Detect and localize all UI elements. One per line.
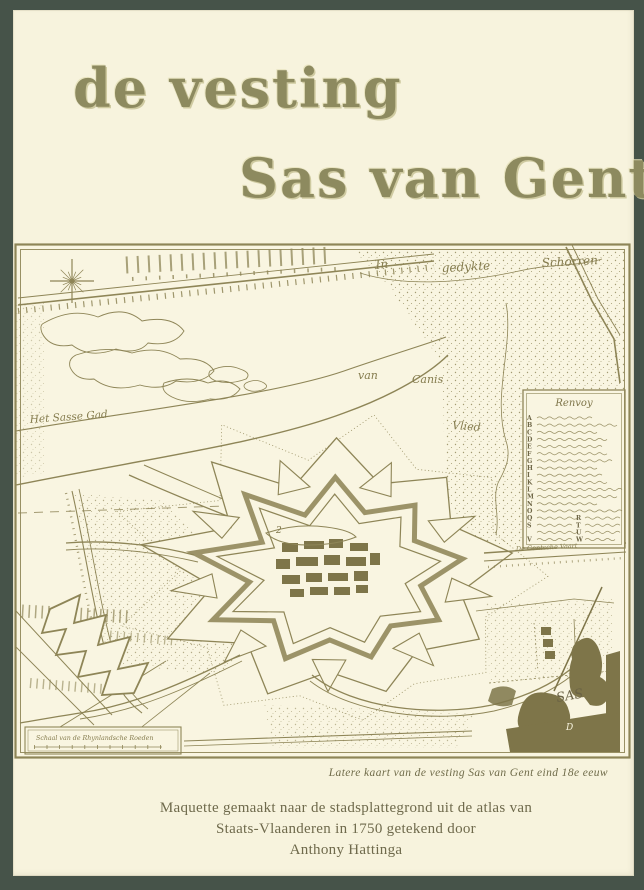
map-engraving: 2 Renvoy bbox=[14, 243, 631, 759]
label-vlied: Vlied bbox=[452, 419, 481, 434]
svg-text:T: T bbox=[576, 522, 581, 529]
credit-block: Maquette gemaakt naar de stadsplattegron… bbox=[13, 798, 634, 861]
svg-text:L: L bbox=[527, 487, 532, 494]
cartouche-d-label: D bbox=[565, 723, 573, 733]
label-gedykte: gedykte bbox=[441, 258, 490, 275]
legend-title: Renvoy bbox=[554, 398, 593, 409]
svg-text:O: O bbox=[527, 508, 533, 515]
svg-text:R: R bbox=[576, 515, 582, 522]
historical-map: 2 Renvoy bbox=[14, 243, 631, 759]
compass-rose-icon bbox=[50, 259, 94, 303]
svg-text:H: H bbox=[527, 465, 533, 472]
svg-text:C: C bbox=[527, 429, 532, 436]
svg-text:N: N bbox=[527, 501, 533, 508]
cover-page: de vesting Sas van Gent bbox=[13, 10, 634, 876]
label-in: In bbox=[374, 257, 389, 272]
label-canis: Canis bbox=[412, 373, 444, 386]
credit-line-1: Maquette gemaakt naar de stadsplattegron… bbox=[58, 798, 634, 819]
svg-text:S: S bbox=[527, 522, 532, 529]
svg-text:U: U bbox=[576, 529, 582, 536]
marsh-blobs bbox=[41, 312, 240, 402]
cover-title-line2: Sas van Gent bbox=[239, 146, 644, 210]
scale-box: Schaal van de Rhynlandsche Roeden bbox=[25, 727, 181, 754]
svg-text:M: M bbox=[527, 494, 534, 501]
svg-text:K: K bbox=[527, 479, 533, 486]
map-caption: Latere kaart van de vesting Sas van Gent… bbox=[329, 767, 608, 779]
svg-text:A: A bbox=[526, 415, 532, 422]
credit-line-2: Staats-Vlaanderen in 1750 getekend door bbox=[58, 819, 634, 840]
book-cover: { "cover": { "title_line1": "de vesting"… bbox=[0, 0, 644, 890]
svg-text:B: B bbox=[527, 422, 532, 429]
cartouche-sas-label: SAS bbox=[555, 686, 584, 706]
svg-text:F: F bbox=[527, 451, 532, 458]
credit-line-3: Anthony Hattinga bbox=[58, 840, 634, 861]
svg-text:D: D bbox=[527, 436, 533, 443]
label-schorren: Schorren bbox=[541, 253, 598, 270]
scale-label: Schaal van de Rhynlandsche Roeden bbox=[36, 735, 153, 742]
label-van: van bbox=[358, 369, 378, 382]
svg-text:Q: Q bbox=[527, 515, 533, 522]
legend-box: Renvoy ABCDEFGHIKLMNOQRSTUVW bbox=[523, 390, 625, 548]
harbor-number-label: 2 bbox=[275, 526, 282, 536]
cover-title-line1: de vesting bbox=[73, 56, 403, 120]
svg-text:I: I bbox=[527, 472, 530, 479]
svg-text:E: E bbox=[527, 444, 532, 451]
svg-text:V: V bbox=[526, 537, 532, 544]
svg-text:G: G bbox=[527, 458, 532, 465]
